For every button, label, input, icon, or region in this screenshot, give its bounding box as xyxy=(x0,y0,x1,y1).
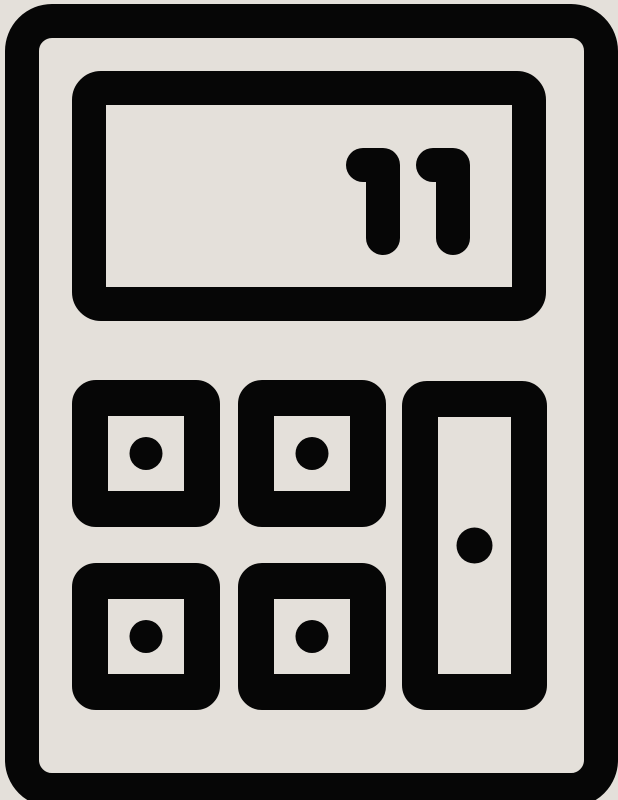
button-dot-icon xyxy=(457,528,493,564)
digit-one-icon xyxy=(363,165,383,238)
display-value xyxy=(363,165,453,238)
keypad-button-bottom-left xyxy=(90,581,202,692)
keypad-button-bottom-middle xyxy=(256,581,368,692)
button-dot-icon xyxy=(296,620,329,653)
keypad-button-tall-right xyxy=(420,399,529,692)
icon-stage xyxy=(0,0,618,800)
keypad xyxy=(90,398,529,692)
keypad-button-top-middle xyxy=(256,398,368,509)
button-dot-icon xyxy=(130,437,163,470)
keypad-button-top-left xyxy=(90,398,202,509)
button-dot-icon xyxy=(130,620,163,653)
button-dot-icon xyxy=(296,437,329,470)
digit-one-icon xyxy=(433,165,453,238)
calculator-icon xyxy=(0,0,618,800)
